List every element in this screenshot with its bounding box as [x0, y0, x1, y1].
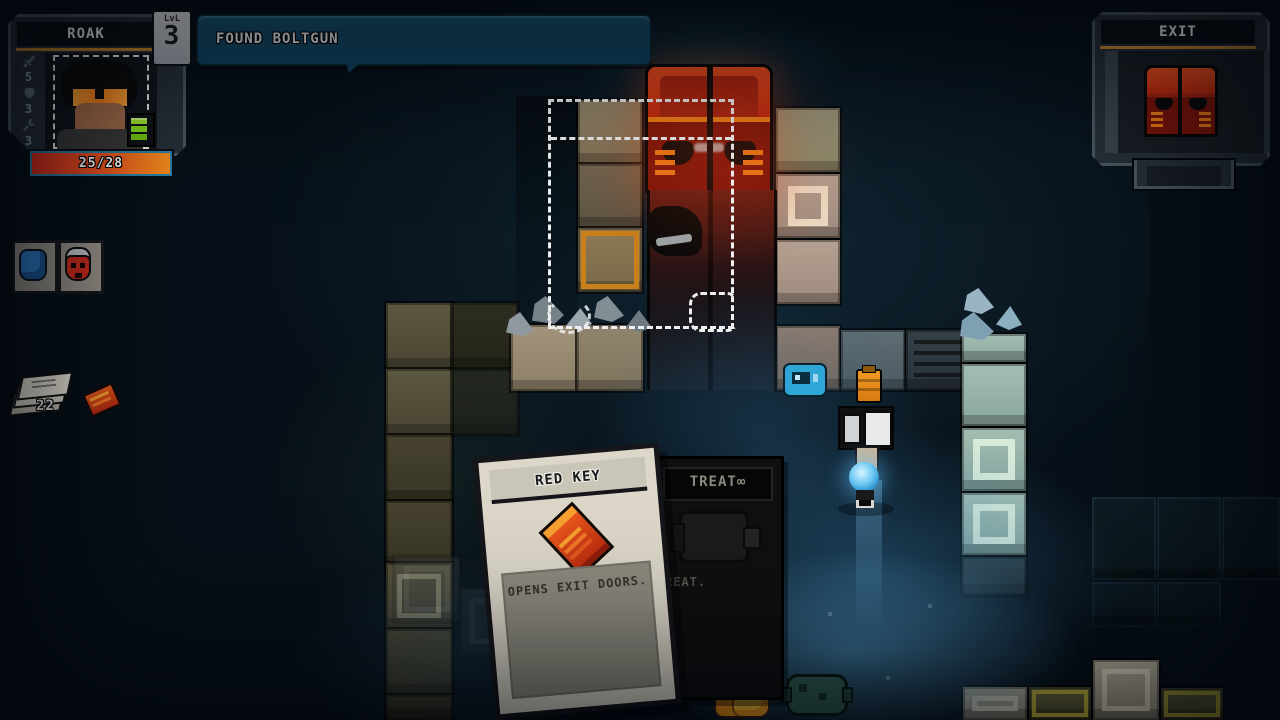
level-badge: LvL 3 [152, 10, 192, 66]
player-portrait[interactable] [45, 53, 157, 149]
player-stats: 5 3 3 [16, 53, 42, 147]
red-key-card[interactable]: RED KEY OPENS EXIT DOORS. [473, 442, 681, 719]
battery-bar [131, 118, 147, 124]
stat-attack-value: 5 [25, 70, 33, 84]
door-icon-vents [1199, 112, 1211, 128]
wall-tile [962, 557, 1026, 595]
selection-hook [547, 298, 591, 334]
player-backpack [838, 406, 894, 450]
wall-tile [962, 364, 1026, 426]
wall-tile [1222, 497, 1280, 580]
red-key-card-description-text: OPENS EXIT DOORS. [507, 573, 648, 599]
wall-tile [386, 629, 452, 695]
wall-tile [962, 428, 1026, 491]
wall-tile [963, 687, 1027, 720]
green-capsule-item[interactable] [786, 674, 848, 716]
blue-armor-icon [21, 251, 45, 279]
wall-tile [386, 435, 452, 501]
wall-tile [452, 369, 518, 435]
health-value: 25/28 [32, 156, 170, 171]
terminal-item[interactable] [783, 363, 827, 397]
inventory-mask-slot[interactable] [58, 240, 104, 294]
canister-item[interactable] [856, 369, 882, 403]
stat-defense-value: 3 [25, 102, 33, 116]
red-key-card-title-text: RED KEY [534, 468, 601, 490]
battery-bar [131, 126, 147, 132]
retreat-card-title-text: TREAT∞ [690, 474, 747, 490]
exit-panel-tab [1134, 160, 1234, 189]
grenade-band [671, 523, 685, 553]
door-icon-vents [1151, 112, 1163, 128]
red-door-icon [1144, 65, 1218, 137]
health-value-text: 25/28 [79, 156, 123, 171]
sword-icon [22, 54, 36, 68]
red-key-card-description: OPENS EXIT DOORS. [501, 561, 661, 700]
backpack-left-panel [843, 414, 861, 444]
red-key-card-body: RED KEY OPENS EXIT DOORS. [478, 448, 675, 714]
player-name-bar: ROAK [17, 22, 155, 46]
game-screen: TREAT∞ REAT. RED KEY OPENS EXIT DOORS. F… [0, 0, 1280, 720]
shield-icon [23, 86, 36, 100]
exit-title-bar: EXIT [1101, 20, 1255, 44]
portrait-eyes-notch [95, 89, 104, 99]
level-value-text: 3 [164, 21, 181, 51]
backpack-right-panel [864, 411, 892, 447]
wall-tile [1093, 660, 1159, 720]
player-name: ROAK [67, 26, 105, 42]
exit-icon-well [1105, 51, 1277, 153]
exit-panel: EXIT [1092, 12, 1270, 166]
panel-divider [1100, 46, 1256, 49]
player-character[interactable] [836, 402, 892, 508]
inventory-armor-slot[interactable] [12, 240, 58, 294]
stat-defense: 3 [16, 104, 42, 115]
battery-bar [131, 134, 147, 140]
exit-panel-tab-inner [1147, 166, 1221, 186]
scrap-count: 22 [36, 398, 55, 414]
canister-stripe [858, 388, 880, 391]
exit-title: EXIT [1159, 24, 1197, 40]
mask-mouth [75, 273, 82, 278]
terminal-pixel [795, 375, 800, 380]
health-bar: 25/28 [30, 151, 172, 176]
retreat-card-description: REAT. [665, 575, 706, 589]
wall-tile [776, 174, 840, 238]
rock-debris [964, 288, 994, 314]
grenade-tip [743, 527, 761, 549]
door-icon-divider [1178, 68, 1182, 134]
wall-tile [577, 325, 643, 391]
rock-debris [996, 306, 1022, 330]
wall-tile [394, 556, 460, 622]
wall-tile [1157, 582, 1221, 627]
wall-tile [386, 303, 452, 369]
notification-tail [346, 63, 360, 73]
level-value: 3 [154, 24, 190, 48]
stat-attack: 5 [16, 72, 42, 83]
wall-tile [776, 240, 840, 304]
capsule-nub [842, 687, 853, 703]
notification-text: FOUND BOLTGUN [216, 31, 339, 47]
notification-banner: FOUND BOLTGUN [196, 14, 652, 66]
canister-cap [862, 365, 876, 373]
player-boots [856, 500, 874, 508]
terminal-pixel [813, 374, 818, 382]
stat-tech: 3 [16, 136, 42, 147]
scrap-count-value: 22 [36, 398, 55, 414]
selection-hook [689, 292, 739, 332]
capsule-spot [799, 684, 807, 692]
wall-tile [1161, 688, 1223, 720]
retreat-card-description-text: REAT. [665, 575, 706, 589]
wall-tile [1092, 582, 1156, 627]
wall-tile [906, 330, 970, 390]
red-key-card-title: RED KEY [489, 457, 647, 504]
battery-icon [127, 113, 155, 147]
wrench-icon [22, 118, 36, 132]
wall-tile [1029, 687, 1091, 720]
mask-eye [71, 263, 76, 268]
retreat-card-title: TREAT∞ [663, 467, 773, 501]
wall-tile [962, 493, 1026, 555]
notification-text-value: FOUND BOLTGUN [216, 31, 339, 47]
wall-tile [386, 369, 452, 435]
door-icon-window [1155, 98, 1173, 110]
wall-tile [776, 108, 840, 172]
wall-tile [1157, 497, 1221, 580]
door-icon-window [1189, 98, 1207, 110]
scrap-counter: 22 [12, 372, 72, 428]
wall-tile [1092, 497, 1156, 580]
grenade-icon [679, 511, 749, 563]
wall-tile [386, 695, 452, 720]
red-mask-icon [67, 249, 89, 281]
mask-eye [80, 263, 85, 268]
red-keycard-indicator [85, 385, 119, 415]
wall-tile [452, 303, 518, 369]
wall-tile [962, 334, 1026, 362]
stat-tech-value: 3 [25, 134, 33, 148]
player-energy-orb [849, 462, 879, 492]
door-vents [743, 150, 763, 178]
selection-inner-line [551, 137, 731, 140]
capsule-spot [819, 693, 826, 700]
selection-marker [548, 99, 734, 329]
canister-stripe [858, 379, 880, 382]
